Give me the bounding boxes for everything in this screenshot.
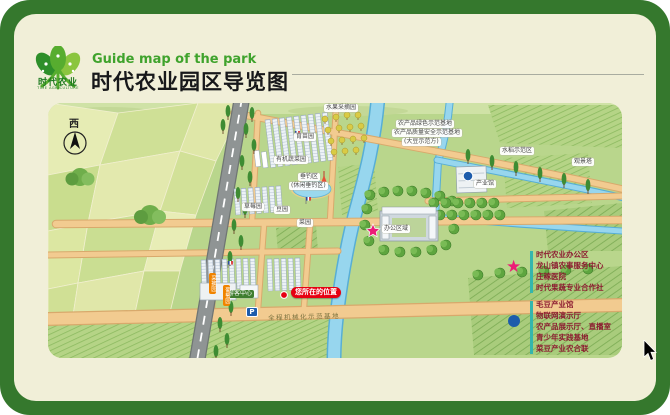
- legend-item: 时代果蔬专业合作社: [536, 282, 611, 293]
- legend-item: 青少年实践基地: [536, 332, 611, 343]
- office-building: [380, 207, 438, 241]
- page-title: 时代农业园区导览图: [91, 66, 289, 96]
- label-picking1: 采摘园: [209, 273, 216, 294]
- legend-item: 物联网演示厅: [536, 310, 611, 321]
- legend-item: 农产品展示厅、直播室: [536, 321, 611, 332]
- map-legend: ★ 时代农业办公区 龙山镇农事服务中心 庄稼医院 时代果蔬专业合作社 毛豆产业馆…: [506, 249, 611, 360]
- dot-marker: [463, 171, 473, 181]
- label-strawberry: 草莓园: [242, 203, 264, 211]
- header-subtitle: Guide map of the park: [92, 52, 256, 67]
- guide-map-poster: 时代农业 TIME AGRICULTURE Guide map of the p…: [0, 0, 670, 415]
- legend-item: 时代农业办公区: [536, 249, 611, 260]
- cursor-icon: [643, 340, 657, 362]
- legend-star-group: ★ 时代农业办公区 龙山镇农事服务中心 庄稼医院 时代果蔬专业合作社: [506, 249, 611, 293]
- legend-item: 毛豆产业馆: [536, 299, 611, 310]
- legend-divider: [530, 251, 533, 293]
- dot-legend-icon: [508, 315, 520, 327]
- legend-dot-group: 毛豆产业馆 物联网演示厅 农产品展示厅、直播室 青少年实践基地 菜豆产业农合联: [506, 299, 611, 354]
- label-industry-hall: 产业馆: [474, 180, 496, 188]
- label-rice-demo: 水稻示范区: [500, 147, 534, 155]
- compass-direction: 西: [69, 115, 79, 130]
- legend-item: 菜豆产业农合联: [536, 343, 611, 354]
- label-bean-garden: 豆园: [274, 206, 290, 214]
- label-tower: 观景塔: [572, 158, 594, 166]
- legend-item: 龙山镇农事服务中心: [536, 260, 611, 271]
- star-legend-icon: ★: [506, 259, 521, 276]
- label-visitor-center: 游客中心: [226, 290, 254, 298]
- legend-item: 庄稼医院: [536, 271, 611, 282]
- you-are-here-badge: 您所在的位置: [291, 287, 341, 298]
- label-base-3: (大豆示范方): [402, 138, 441, 146]
- parking-sign: P: [246, 307, 258, 317]
- header-divider: [292, 74, 644, 75]
- label-fishing-1: 垂钓区: [298, 173, 320, 181]
- you-are-here-dot: [281, 292, 288, 299]
- label-seedling: 育苗园: [294, 133, 316, 141]
- label-office: 办公区域: [382, 225, 410, 233]
- legend-divider: [530, 301, 533, 354]
- label-base-2: 农产品质量安全示范基地: [392, 129, 462, 137]
- label-picking2: 葡萄园: [223, 285, 230, 306]
- label-base-1: 农产品绿色示范基地: [396, 120, 454, 128]
- logo-subtext: TIME AGRICULTURE: [26, 86, 90, 90]
- label-fishing-2: (休闲垂钓区): [289, 182, 328, 190]
- label-veg-garden: 菜园: [297, 219, 313, 227]
- road-label: 全程机械化示范基地: [268, 310, 340, 322]
- park-map: 西 水果采摘园 水稻示范区 观景塔 育苗园 有机蔬菜园 草莓园 垂钓区 (休闲垂…: [48, 103, 622, 358]
- label-fruit-picking: 水果采摘园: [324, 104, 358, 112]
- label-organic-veg: 有机蔬菜园: [274, 156, 308, 164]
